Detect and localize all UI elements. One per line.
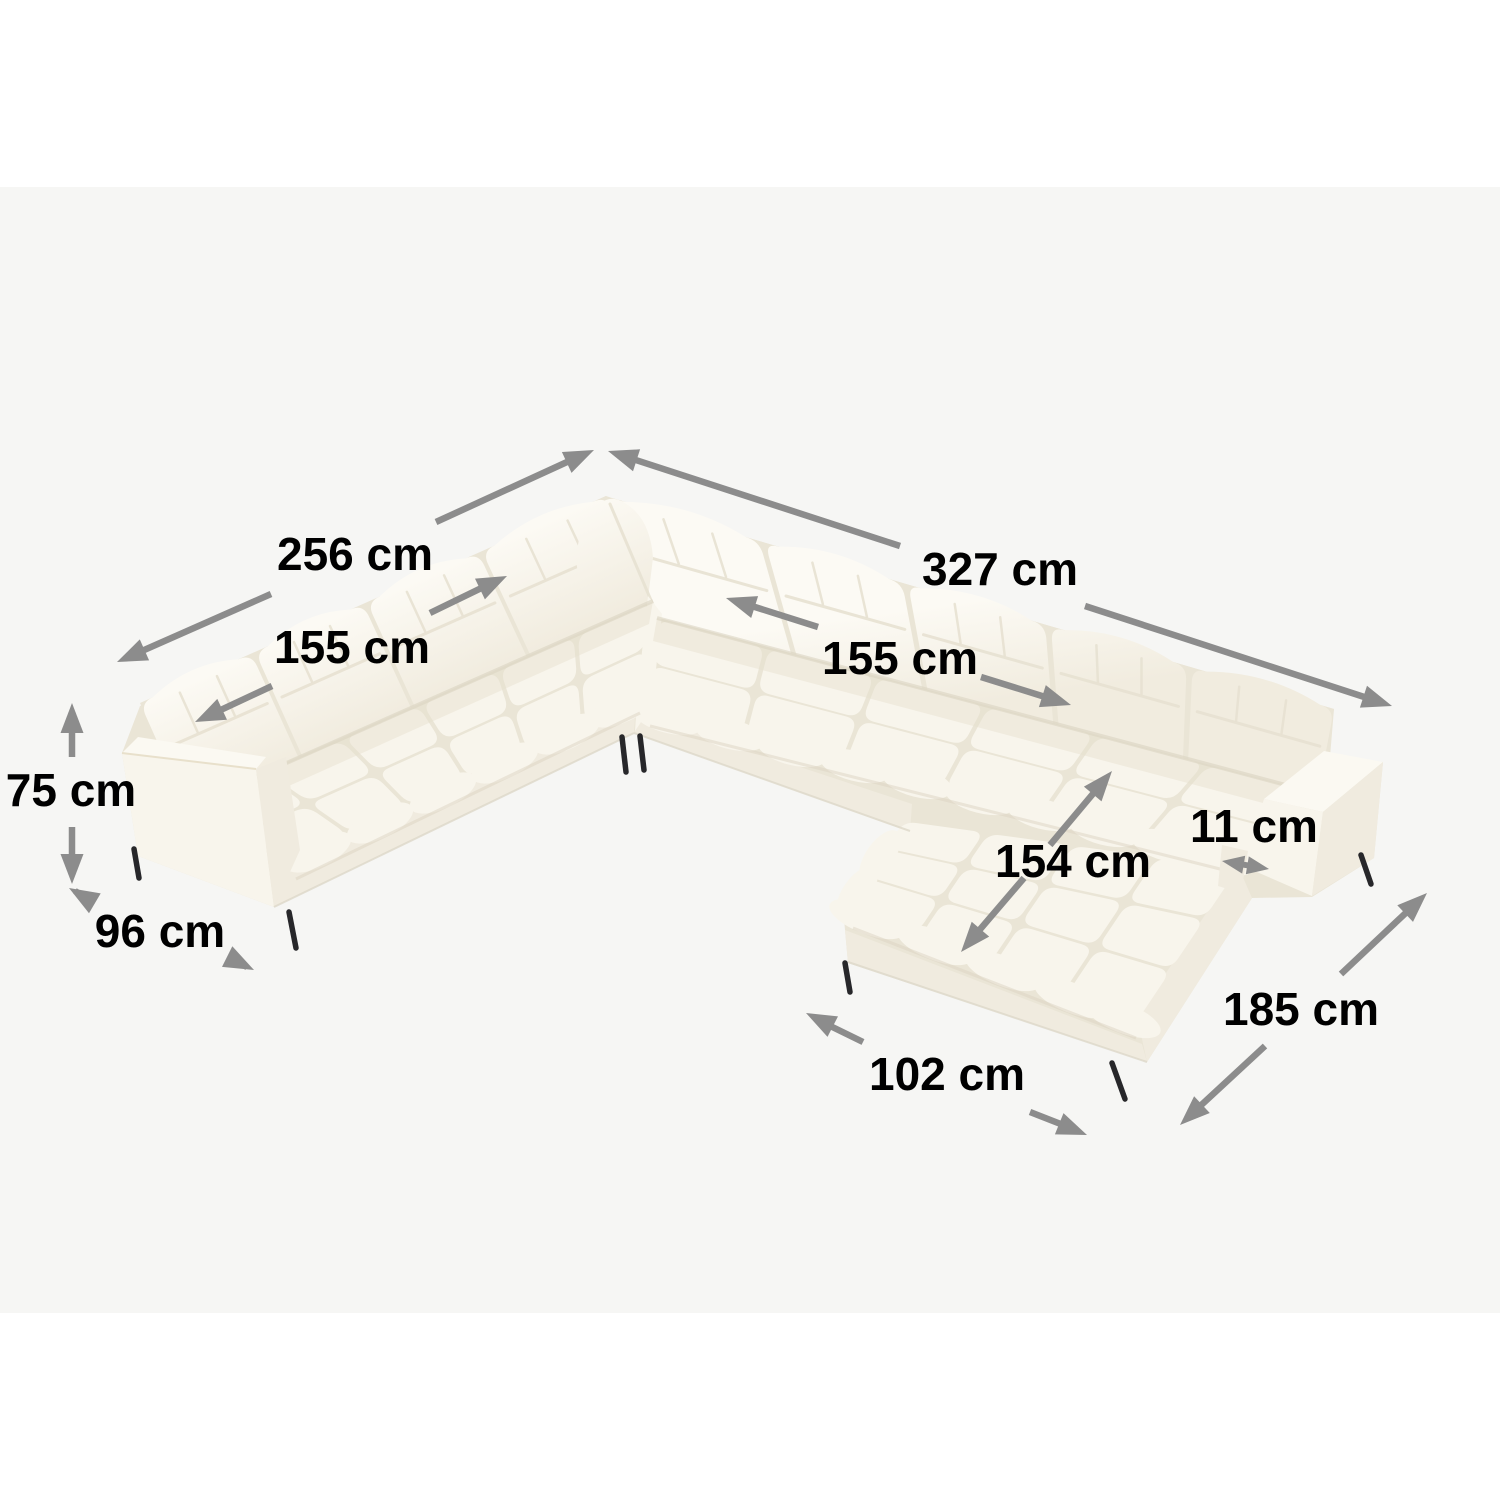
svg-text:154 cm: 154 cm [995,835,1151,887]
svg-text:75 cm: 75 cm [6,764,136,816]
svg-text:256 cm: 256 cm [277,528,433,580]
svg-text:155 cm: 155 cm [822,632,978,684]
svg-text:96 cm: 96 cm [95,905,225,957]
svg-text:11 cm: 11 cm [1190,800,1318,852]
svg-text:155 cm: 155 cm [274,621,430,673]
svg-text:185 cm: 185 cm [1223,983,1379,1035]
svg-text:102 cm: 102 cm [869,1048,1025,1100]
svg-text:327 cm: 327 cm [922,543,1078,595]
